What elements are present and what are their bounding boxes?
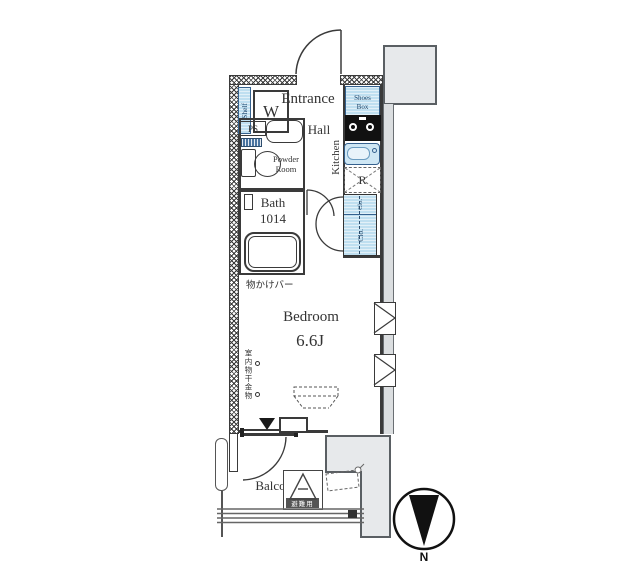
wall-bottom-right-seg xyxy=(306,430,328,433)
bedroom-size-label: 6.6J xyxy=(288,331,332,351)
refrigerator-label: R xyxy=(358,173,366,188)
railing-post xyxy=(348,510,357,518)
shoes-box-label: Shoes Box xyxy=(350,94,376,110)
wall-top-left xyxy=(229,75,297,85)
stove-burner xyxy=(349,123,357,131)
powder-room-walls xyxy=(239,118,305,190)
evacuation-hatch: 避難用 xyxy=(283,470,323,510)
laundry-hook-mark xyxy=(255,361,260,366)
wall-step-notch xyxy=(279,417,308,433)
floor-plan: Shelf W Entrance Shoes Box PS Powder Roo… xyxy=(0,0,640,569)
sink-basin xyxy=(347,147,370,160)
bedroom-window-lower xyxy=(374,354,396,387)
stove-burner xyxy=(366,123,374,131)
kitchen-label: Kitchen xyxy=(329,121,342,194)
closet-lower-label: Clo. xyxy=(356,229,365,242)
closet-doors xyxy=(316,197,343,251)
bath-label: Bath xyxy=(252,195,294,211)
indoor-laundry-label: 室内物干金物 xyxy=(243,349,256,421)
refrigerator-space: R xyxy=(344,167,381,193)
balcony-left-wall xyxy=(229,433,238,472)
entrance-label: Entrance xyxy=(265,91,351,107)
bedroom-label: Bedroom xyxy=(280,308,342,326)
closet: Clo. Clo. xyxy=(343,194,377,256)
evacuation-hatch-label: 避難用 xyxy=(291,498,314,508)
evacuation-hatch-label-band: 避難用 xyxy=(286,498,319,508)
ceiling-fixture-dashes xyxy=(294,387,338,408)
stove-grill xyxy=(359,117,366,120)
structure-block-top-right xyxy=(383,45,437,105)
bedroom-window-upper xyxy=(374,302,396,335)
structure-block-bottom-right xyxy=(326,436,390,537)
bathtub-inner xyxy=(248,236,297,268)
closet-lower-section: Clo. xyxy=(344,215,376,255)
compass-icon xyxy=(394,489,454,549)
entrance-door xyxy=(296,30,341,74)
balcony-railing xyxy=(217,509,364,523)
kitchen-sink xyxy=(344,143,380,165)
laundry-hook-mark xyxy=(255,392,260,397)
stove xyxy=(345,115,381,141)
shelf-label: Shelf xyxy=(240,103,249,119)
closet-upper-label: Clo. xyxy=(357,199,364,210)
window-frame-cap xyxy=(240,428,244,437)
sink-faucet xyxy=(372,148,377,153)
hanging-bar-label: 物かけバー xyxy=(246,277,310,289)
bathtub xyxy=(244,232,301,272)
balcony-dashed-symbol xyxy=(326,464,364,491)
closet-upper-section: Clo. xyxy=(344,195,376,214)
bath-size-label: 1014 xyxy=(252,211,294,227)
compass-north-label: N xyxy=(415,549,433,565)
balcony-door xyxy=(243,437,286,480)
drain-pipe-line xyxy=(221,491,223,537)
drain-pipe xyxy=(215,438,228,491)
wall-top-right xyxy=(340,75,383,85)
